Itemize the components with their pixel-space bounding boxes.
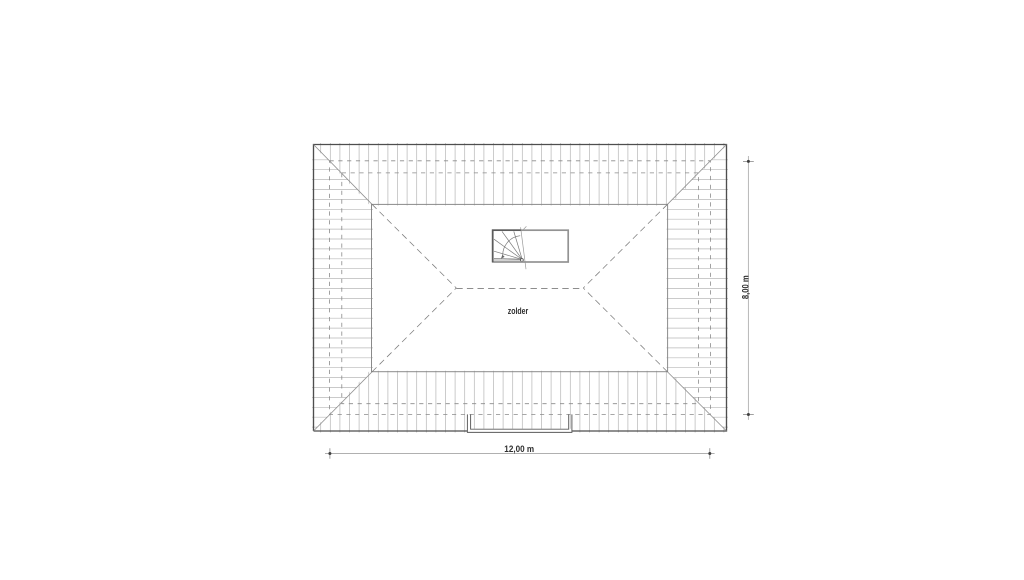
svg-text:zolder: zolder — [508, 306, 529, 316]
svg-text:12,00 m: 12,00 m — [504, 444, 534, 454]
svg-text:8,00 m: 8,00 m — [740, 275, 750, 299]
